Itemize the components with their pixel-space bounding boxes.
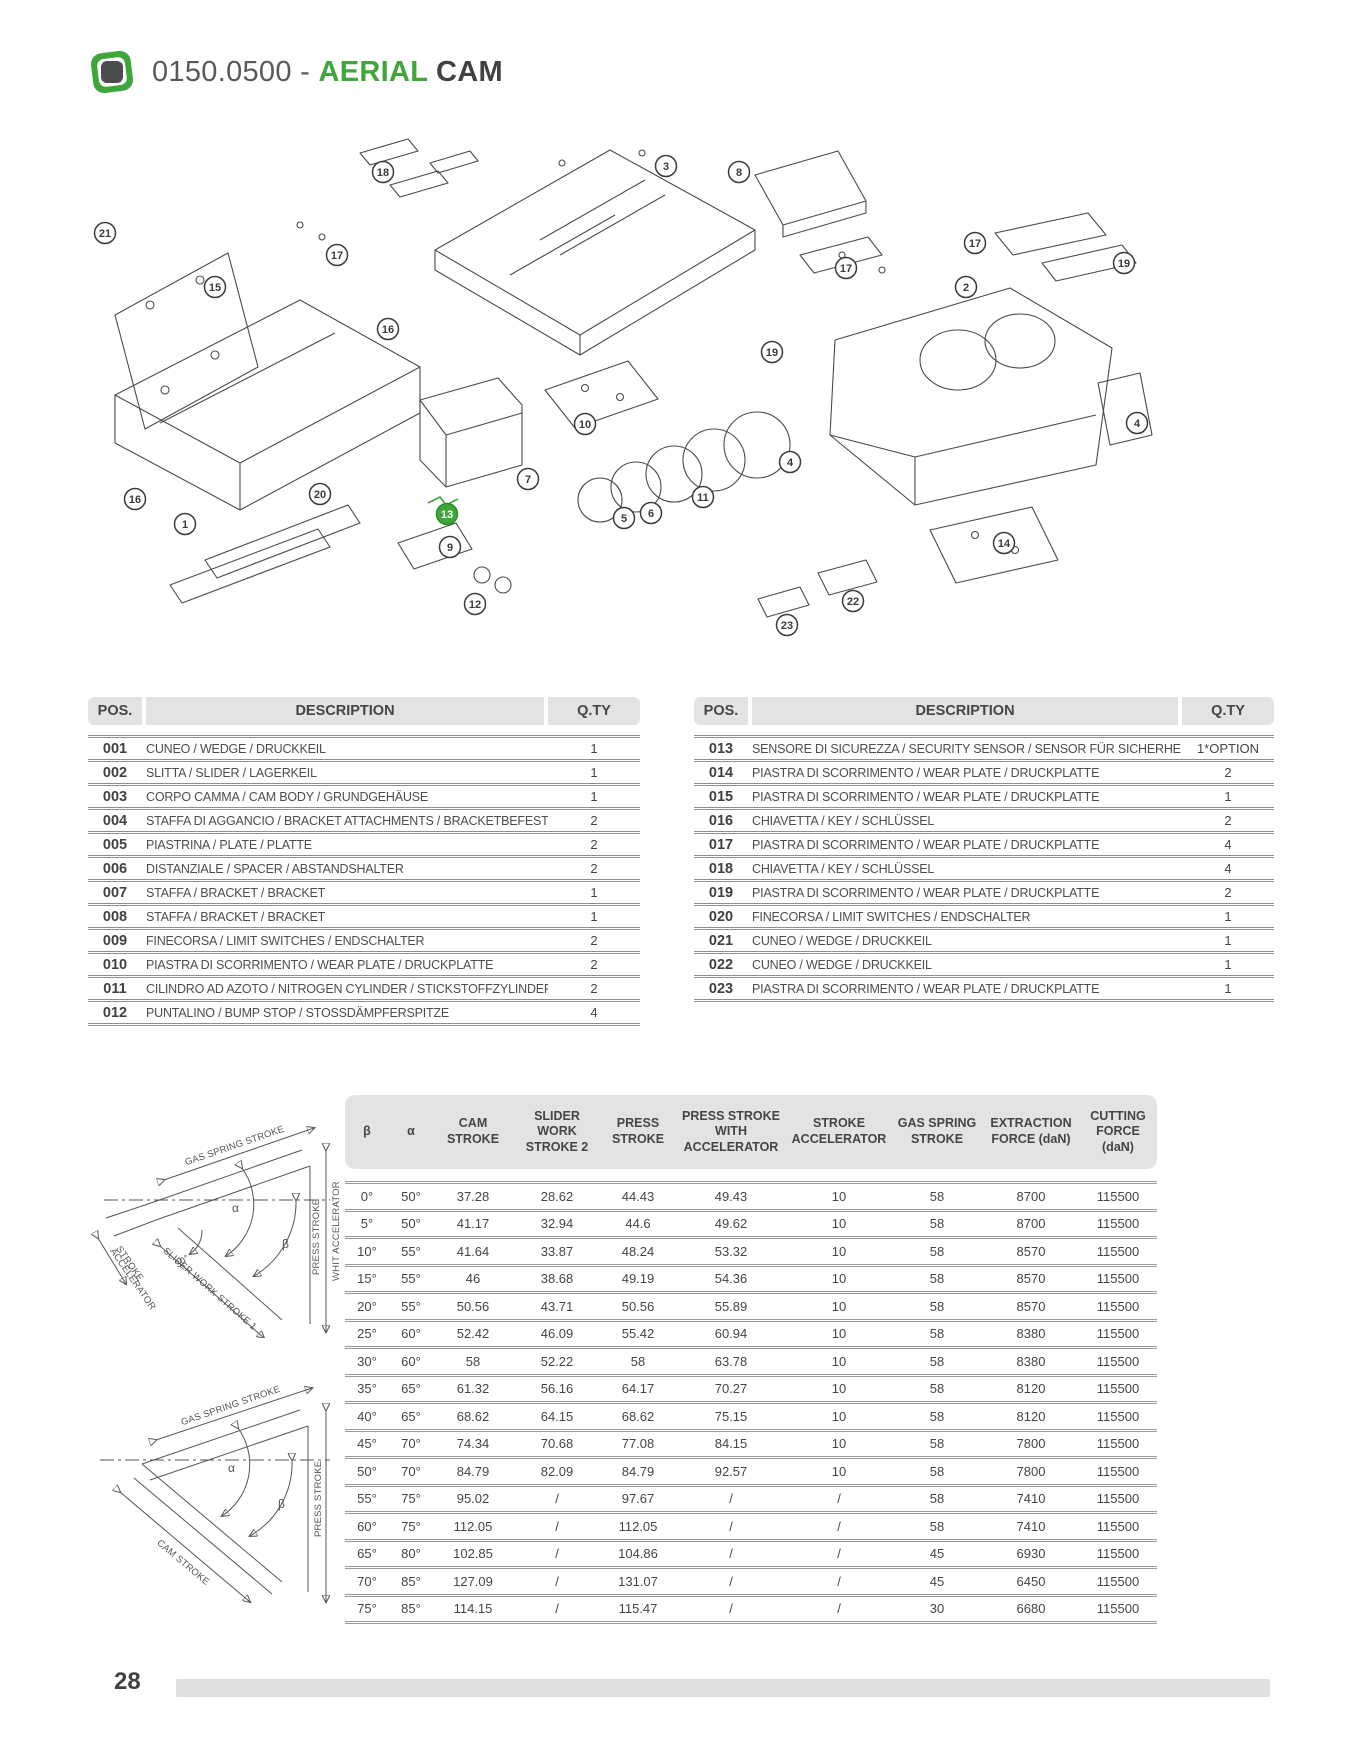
part-pos: 005 [88,837,142,853]
spec-cell: 58 [891,1244,983,1259]
spec-cell: 43.71 [513,1299,601,1314]
parts-table-left: POS. DESCRIPTION Q.TY 001CUNEO / WEDGE /… [88,697,640,1026]
callout-balloon-17: 17 [965,233,986,254]
spec-cell: / [787,1491,891,1506]
part-description: PIASTRINA / PLATE / PLATTE [142,838,548,852]
spec-cell: 115.47 [601,1601,675,1616]
part-description: STAFFA DI AGGANCIO / BRACKET ATTACHMENTS… [142,814,548,828]
qty-column-header: Q.TY [1182,697,1274,725]
spec-cell: 114.15 [433,1601,513,1616]
spec-cell: 49.19 [601,1271,675,1286]
spec-cell: 45 [891,1574,983,1589]
spec-cell: 52.22 [513,1354,601,1369]
svg-text:4: 4 [1134,418,1141,430]
spec-row: 35°65°61.3256.1664.1770.2710588120115500 [345,1377,1157,1405]
spec-cell: 102.85 [433,1546,513,1561]
spec-cell: 44.43 [601,1189,675,1204]
spec-row: 45°70°74.3470.6877.0884.1510587800115500 [345,1432,1157,1460]
svg-text:18: 18 [377,167,389,179]
parts-row: 017PIASTRA DI SCORRIMENTO / WEAR PLATE /… [694,834,1274,858]
spec-row: 20°55°50.5643.7150.5655.8910588570115500 [345,1294,1157,1322]
spec-cell: 20° [345,1299,389,1314]
svg-text:22: 22 [847,596,859,608]
description-column-header: DESCRIPTION [752,697,1178,725]
part-pos: 019 [694,885,748,901]
spec-cell: 64.15 [513,1409,601,1424]
spec-cell: 115500 [1079,1216,1157,1231]
spec-cell: 77.08 [601,1436,675,1451]
alpha-label: α [232,1201,239,1215]
spec-cell: 55.89 [675,1299,787,1314]
spec-cell: 8570 [983,1271,1079,1286]
spec-cell: / [675,1519,787,1534]
part-qty: 2 [1182,765,1274,780]
spec-cell: / [513,1601,601,1616]
spec-cell: 70° [389,1464,433,1479]
callout-balloon-16: 16 [125,489,146,510]
svg-text:3: 3 [663,161,669,173]
spec-cell: 58 [891,1409,983,1424]
callout-balloon-22: 22 [843,591,864,612]
svg-text:15: 15 [209,282,221,294]
spec-cell: 74.34 [433,1436,513,1451]
parts-row: 018CHIAVETTA / KEY / SCHLÜSSEL4 [694,858,1274,882]
spec-cell: 30 [891,1601,983,1616]
part-qty: 2 [548,981,640,996]
spec-cell: 75.15 [675,1409,787,1424]
part-qty: 1 [1182,933,1274,948]
parts-row: 007STAFFA / BRACKET / BRACKET1 [88,882,640,906]
spec-cell: 112.05 [601,1519,675,1534]
callout-balloon-20: 20 [310,484,331,505]
spec-row: 30°60°5852.225863.7810588380115500 [345,1349,1157,1377]
spec-column-header: EXTRACTION FORCE (daN) [983,1116,1079,1147]
spec-cell: 131.07 [601,1574,675,1589]
spec-cell: / [513,1546,601,1561]
parts-rows: 013SENSORE DI SICUREZZA / SECURITY SENSO… [694,735,1274,1002]
spec-cell: 8700 [983,1189,1079,1204]
spec-cell: 10 [787,1436,891,1451]
spec-cell: / [675,1546,787,1561]
parts-row: 023PIASTRA DI SCORRIMENTO / WEAR PLATE /… [694,978,1274,1002]
spec-cell: 115500 [1079,1436,1157,1451]
description-column-header: DESCRIPTION [146,697,544,725]
part-outline [435,150,755,335]
spec-cell: 84.79 [433,1464,513,1479]
spec-cell: 7800 [983,1464,1079,1479]
spec-cell: 58 [891,1464,983,1479]
part-pos: 008 [88,909,142,925]
spec-cell: 75° [389,1519,433,1534]
svg-text:8: 8 [736,167,742,179]
part-description: CHIAVETTA / KEY / SCHLÜSSEL [748,814,1182,828]
svg-text:23: 23 [781,620,793,632]
parts-table-header: POS. DESCRIPTION Q.TY [694,697,1274,725]
spec-cell: 54.36 [675,1271,787,1286]
callout-balloon-14: 14 [994,533,1015,554]
parts-row: 019PIASTRA DI SCORRIMENTO / WEAR PLATE /… [694,882,1274,906]
spec-cell: 65° [389,1381,433,1396]
parts-row: 022CUNEO / WEDGE / DRUCKKEIL1 [694,954,1274,978]
part-outline [545,361,658,428]
spec-cell: 115500 [1079,1601,1157,1616]
callout-balloon-3: 3 [656,156,677,177]
spec-cell: 115500 [1079,1354,1157,1369]
product-name-rest: CAM [428,56,503,88]
spec-cell: 58 [891,1299,983,1314]
parts-rows: 001CUNEO / WEDGE / DRUCKKEIL1002SLITTA /… [88,735,640,1026]
svg-text:19: 19 [766,347,778,359]
spec-cell: 115500 [1079,1519,1157,1534]
spec-column-header: STROKE ACCELERATOR [787,1116,891,1147]
stroke-accelerator-label-2: ACCELERATOR [107,1246,158,1312]
spec-column-header: α [389,1124,433,1140]
svg-text:10: 10 [579,419,591,431]
spec-cell: 55° [389,1299,433,1314]
part-pos: 021 [694,933,748,949]
part-qty: 1 [548,885,640,900]
pos-column-header: POS. [88,697,142,725]
spec-cell: 115500 [1079,1574,1157,1589]
spec-cell: 10 [787,1409,891,1424]
part-pos: 007 [88,885,142,901]
part-qty: 2 [1182,885,1274,900]
part-pos: 006 [88,861,142,877]
spec-cell: / [675,1491,787,1506]
spec-cell: / [787,1601,891,1616]
spec-cell: 58 [891,1354,983,1369]
spec-cell: 58 [433,1354,513,1369]
callout-balloon-10: 10 [575,414,596,435]
svg-text:21: 21 [99,228,111,240]
page-number: 28 [114,1668,141,1696]
spec-cell: / [787,1546,891,1561]
callout-balloon-6: 6 [641,503,662,524]
stroke-angle-diagram-standard: GAS SPRING STROKE CAM STROKE PRESS STROK… [86,1352,342,1612]
svg-text:13: 13 [441,509,453,521]
spec-cell: 58 [891,1381,983,1396]
spec-cell: 85° [389,1574,433,1589]
svg-text:5: 5 [621,513,627,525]
spec-cell: 58 [891,1216,983,1231]
part-pos: 023 [694,981,748,997]
spec-cell: 45 [891,1546,983,1561]
page-header: 0150.0500 - AERIAL CAM [88,48,503,96]
spec-cell: 58 [601,1354,675,1369]
callout-balloon-8: 8 [729,162,750,183]
part-qty: 1 [1182,957,1274,972]
svg-text:16: 16 [382,324,394,336]
part-pos: 022 [694,957,748,973]
spec-cell: 112.05 [433,1519,513,1534]
callout-balloon-9: 9 [440,537,461,558]
spec-cell: 75° [345,1601,389,1616]
spec-cell: 115500 [1079,1491,1157,1506]
spec-cell: 115500 [1079,1326,1157,1341]
spec-cell: 7410 [983,1519,1079,1534]
part-description: PIASTRA DI SCORRIMENTO / WEAR PLATE / DR… [748,790,1182,804]
part-pos: 020 [694,909,748,925]
spec-cell: 10° [345,1244,389,1259]
callout-balloon-19: 19 [762,342,783,363]
spec-cell: 104.86 [601,1546,675,1561]
spec-cell: 58 [891,1271,983,1286]
part-pos: 014 [694,765,748,781]
svg-text:14: 14 [998,538,1011,550]
part-pos: 012 [88,1005,142,1021]
spec-cell: 10 [787,1464,891,1479]
callout-balloon-16: 16 [378,319,399,340]
part-outline [420,378,522,487]
spec-cell: 55° [389,1244,433,1259]
part-pos: 002 [88,765,142,781]
spec-cell: 84.15 [675,1436,787,1451]
press-stroke-accelerator-label: WHIT ACCELERATOR [331,1181,342,1281]
part-description: FINECORSA / LIMIT SWITCHES / ENDSCHALTER [748,910,1182,924]
part-description: CUNEO / WEDGE / DRUCKKEIL [748,934,1182,948]
part-description: DISTANZIALE / SPACER / ABSTANDSHALTER [142,862,548,876]
part-description: CHIAVETTA / KEY / SCHLÜSSEL [748,862,1182,876]
part-qty: 1 [548,789,640,804]
part-description: CORPO CAMMA / CAM BODY / GRUNDGEHÄUSE [142,790,548,804]
spec-cell: 115500 [1079,1299,1157,1314]
spec-cell: 115500 [1079,1189,1157,1204]
spec-cell: 58 [891,1519,983,1534]
spec-cell: / [675,1574,787,1589]
svg-text:12: 12 [469,599,481,611]
part-description: SLITTA / SLIDER / LAGERKEIL [142,766,548,780]
part-qty: 2 [548,933,640,948]
spec-cell: 61.32 [433,1381,513,1396]
spec-cell: 49.62 [675,1216,787,1231]
spec-cell: 64.17 [601,1381,675,1396]
spec-cell: 10 [787,1354,891,1369]
catalog-page: 0150.0500 - AERIAL CAM [0,0,1359,1754]
spec-cell: / [787,1574,891,1589]
callout-balloon-7: 7 [518,469,539,490]
spec-row: 40°65°68.6264.1568.6275.1510588120115500 [345,1404,1157,1432]
press-stroke-label: PRESS STROKE [313,1461,324,1537]
callout-balloons: 1838211715171917216191047411162011356914… [95,156,1148,636]
spec-cell: 95.02 [433,1491,513,1506]
spec-cell: 44.6 [601,1216,675,1231]
part-qty: 2 [548,957,640,972]
spec-cell: 8570 [983,1299,1079,1314]
footer-bar [176,1679,1270,1697]
spec-cell: 40° [345,1409,389,1424]
page-title: 0150.0500 - AERIAL CAM [152,56,503,89]
spec-cell: 46.09 [513,1326,601,1341]
callout-balloon-19: 19 [1114,253,1135,274]
spec-cell: 65° [345,1546,389,1561]
product-name-accent: AERIAL [318,56,427,88]
spec-cell: 60° [389,1354,433,1369]
spec-cell: 8120 [983,1409,1079,1424]
svg-text:20: 20 [314,489,326,501]
spec-cell: 8380 [983,1326,1079,1341]
part-description: FINECORSA / LIMIT SWITCHES / ENDSCHALTER [142,934,548,948]
product-code: 0150.0500 - [152,56,318,88]
spec-cell: 63.78 [675,1354,787,1369]
spec-cell: 41.17 [433,1216,513,1231]
callout-balloon-23: 23 [777,615,798,636]
spec-column-header: CUTTING FORCE (daN) [1079,1109,1157,1156]
spec-column-header: PRESS STROKE [601,1116,675,1147]
part-qty: 4 [1182,861,1274,876]
spec-row: 10°55°41.6433.8748.2453.3210588570115500 [345,1239,1157,1267]
spec-cell: 30° [345,1354,389,1369]
part-outline [1098,373,1152,445]
part-pos: 009 [88,933,142,949]
spec-cell: 37.28 [433,1189,513,1204]
parts-row: 005PIASTRINA / PLATE / PLATTE2 [88,834,640,858]
part-description: CILINDRO AD AZOTO / NITROGEN CYLINDER / … [142,982,548,996]
part-outline [995,213,1136,281]
part-qty: 2 [548,813,640,828]
spec-cell: 10 [787,1326,891,1341]
parts-row: 010PIASTRA DI SCORRIMENTO / WEAR PLATE /… [88,954,640,978]
part-pos: 018 [694,861,748,877]
spec-row: 65°80°102.85/104.86//456930115500 [345,1542,1157,1570]
parts-table-right: POS. DESCRIPTION Q.TY 013SENSORE DI SICU… [694,697,1274,1002]
part-outline [830,415,1096,505]
spec-cell: 115500 [1079,1546,1157,1561]
part-qty: 4 [1182,837,1274,852]
svg-text:4: 4 [787,457,794,469]
spec-cell: 55° [345,1491,389,1506]
callout-balloon-2: 2 [956,277,977,298]
spec-cell: 10 [787,1244,891,1259]
spec-cell: 38.68 [513,1271,601,1286]
callout-balloon-18: 18 [373,162,394,183]
callout-balloon-13: 13 [437,504,458,525]
spec-cell: 85° [389,1601,433,1616]
spec-cell: 70° [345,1574,389,1589]
qty-column-header: Q.TY [548,697,640,725]
parts-row: 009FINECORSA / LIMIT SWITCHES / ENDSCHAL… [88,930,640,954]
spec-cell: 56.16 [513,1381,601,1396]
svg-text:6: 6 [648,508,654,520]
part-description: PIASTRA DI SCORRIMENTO / WEAR PLATE / DR… [142,958,548,972]
svg-text:17: 17 [840,263,852,275]
spec-cell: 65° [389,1409,433,1424]
part-qty: 1 [548,765,640,780]
spec-cell: 6680 [983,1601,1079,1616]
spec-cell: 50° [389,1216,433,1231]
spec-cell: 10 [787,1216,891,1231]
part-pos: 010 [88,957,142,973]
spec-column-header: PRESS STROKE WITH ACCELERATOR [675,1109,787,1156]
spec-cell: 115500 [1079,1244,1157,1259]
spec-cell: 97.67 [601,1491,675,1506]
spec-cell: 70.27 [675,1381,787,1396]
spec-cell: 5° [345,1216,389,1231]
spec-cell: / [513,1574,601,1589]
parts-row: 012PUNTALINO / BUMP STOP / STOSSDÄMPFERS… [88,1002,640,1026]
spec-cell: 58 [891,1436,983,1451]
spec-table-header: βαCAM STROKESLIDER WORK STROKE 2PRESS ST… [345,1095,1157,1169]
part-qty: 1 [548,741,640,756]
spec-cell: 53.32 [675,1244,787,1259]
spec-cell: 68.62 [601,1409,675,1424]
spec-cell: / [787,1519,891,1534]
spec-cell: 32.94 [513,1216,601,1231]
spec-cell: / [513,1491,601,1506]
part-outline [115,300,420,510]
part-pos: 011 [88,981,142,997]
part-outline [435,230,755,355]
spec-cell: 50.56 [601,1299,675,1314]
spec-cell: 6450 [983,1574,1079,1589]
spec-cell: 75° [389,1491,433,1506]
callout-balloon-15: 15 [205,277,226,298]
part-qty: 1 [1182,981,1274,996]
parts-row: 020FINECORSA / LIMIT SWITCHES / ENDSCHAL… [694,906,1274,930]
callout-balloon-1: 1 [175,514,196,535]
spec-row: 60°75°112.05/112.05//587410115500 [345,1514,1157,1542]
spec-cell: 115500 [1079,1271,1157,1286]
part-pos: 003 [88,789,142,805]
spec-cell: 50° [389,1189,433,1204]
spec-cell: 10 [787,1271,891,1286]
spec-column-header: GAS SPRING STROKE [891,1116,983,1147]
spec-cell: 70.68 [513,1436,601,1451]
callout-balloon-21: 21 [95,223,116,244]
spec-cell: / [513,1519,601,1534]
spec-cell: 8120 [983,1381,1079,1396]
part-outline [830,288,1112,505]
spec-row: 25°60°52.4246.0955.4260.9410588380115500 [345,1322,1157,1350]
beta-label: β [282,1237,289,1251]
spec-cell: 84.79 [601,1464,675,1479]
spec-cell: 33.87 [513,1244,601,1259]
spec-cell: 28.62 [513,1189,601,1204]
spec-cell: 127.09 [433,1574,513,1589]
spec-cell: 82.09 [513,1464,601,1479]
part-qty: 2 [548,837,640,852]
part-description: CUNEO / WEDGE / DRUCKKEIL [748,958,1182,972]
spec-cell: 45° [345,1436,389,1451]
part-qty: 1 [1182,909,1274,924]
parts-row: 008STAFFA / BRACKET / BRACKET1 [88,906,640,930]
spec-cell: 52.42 [433,1326,513,1341]
part-description: PUNTALINO / BUMP STOP / STOSSDÄMPFERSPIT… [142,1006,548,1020]
spec-cell: 10 [787,1299,891,1314]
svg-text:19: 19 [1118,258,1130,270]
spec-cell: 50° [345,1464,389,1479]
spec-cell: 41.64 [433,1244,513,1259]
spec-row: 70°85°127.09/131.07//456450115500 [345,1569,1157,1597]
pos-column-header: POS. [694,697,748,725]
parts-row: 015PIASTRA DI SCORRIMENTO / WEAR PLATE /… [694,786,1274,810]
callout-balloon-4: 4 [780,452,801,473]
part-pos: 016 [694,813,748,829]
part-qty: 1 [1182,789,1274,804]
svg-text:11: 11 [697,492,709,504]
spec-row: 55°75°95.02/97.67//587410115500 [345,1487,1157,1515]
spec-cell: / [675,1601,787,1616]
spec-cell: 50.56 [433,1299,513,1314]
spec-cell: 25° [345,1326,389,1341]
part-pos: 015 [694,789,748,805]
spec-column-header: β [345,1124,389,1140]
exploded-view-diagram: 1838211715171917216191047411162011356914… [0,105,1359,685]
svg-text:7: 7 [525,474,531,486]
press-stroke-label: PRESS STROKE [311,1199,322,1275]
callout-balloon-17: 17 [836,258,857,279]
spec-cell: 7410 [983,1491,1079,1506]
spec-cell: 8380 [983,1354,1079,1369]
